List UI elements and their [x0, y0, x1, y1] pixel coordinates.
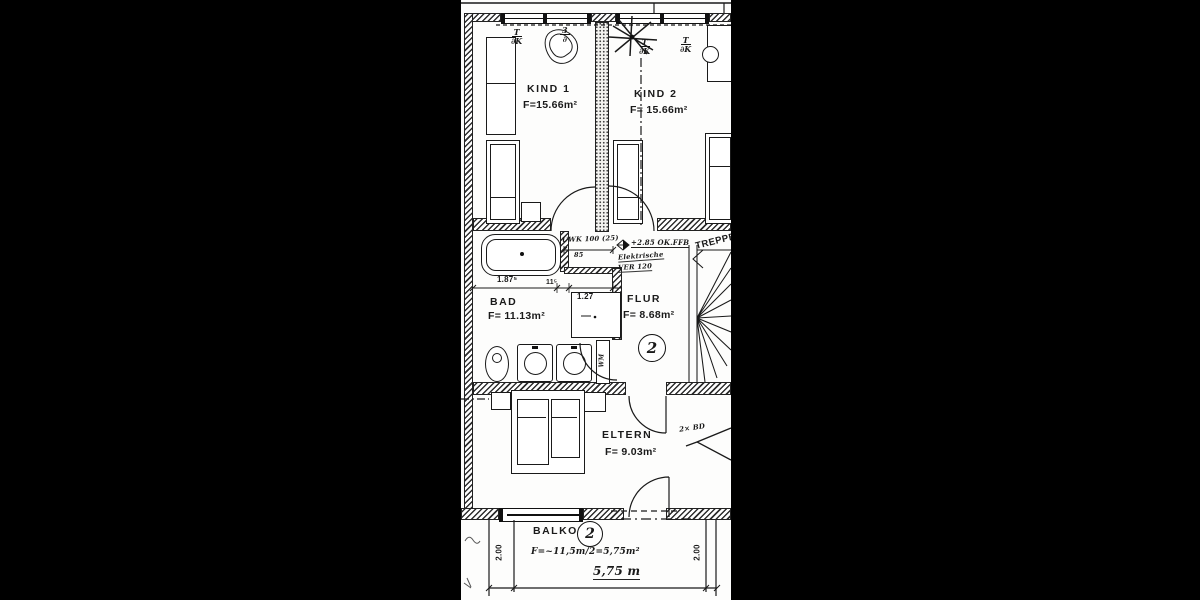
- sink-2-tap: [571, 346, 577, 349]
- dim-balcony-left: 2.00: [495, 544, 504, 560]
- nightstand-eltern-left: [491, 392, 511, 410]
- dim-wall: 11⁵: [546, 279, 557, 286]
- dim-85: 85: [574, 251, 583, 259]
- wall-balcony-left: [461, 508, 499, 520]
- toilet: [485, 346, 509, 382]
- door-arc-balcony: [629, 477, 669, 517]
- room-area-eltern: F= 9.03m²: [605, 446, 656, 458]
- sketch-arrow: [686, 428, 731, 460]
- nightstand-eltern-right: [584, 392, 606, 412]
- balkon-area-formula: F=~11,5m/2=5,75m²: [531, 547, 640, 557]
- floor-plan: WM: [461, 0, 731, 600]
- dim-balcony-width: 5,75 m: [593, 564, 640, 580]
- unit-number-flur: 2: [638, 334, 666, 362]
- room-label-flur: FLUR: [627, 293, 661, 305]
- wall-top-right: [709, 13, 731, 22]
- sink-1-tap: [532, 346, 538, 349]
- room-area-flur: F= 8.68m²: [623, 309, 674, 321]
- bed-kind1: [486, 140, 520, 224]
- margin-scribbles: [464, 537, 480, 588]
- electrical-symbol-tbk-4: T ∂K: [680, 36, 691, 53]
- sink-1: [517, 344, 553, 382]
- electrical-symbol-tbk-1: T ∂K: [511, 28, 522, 45]
- washing-machine-label: WM: [598, 354, 605, 368]
- wall-left-exterior: [464, 13, 473, 520]
- room-label-treppe: TREPPE: [694, 231, 731, 252]
- nightstand-kind1: [521, 202, 541, 222]
- wall-balcony-right: [666, 508, 731, 520]
- door-arc-kind1: [551, 187, 595, 231]
- wall-top-left: [469, 13, 501, 22]
- wall-top-mid: [591, 13, 616, 22]
- unit-number-balkon: 2: [577, 521, 603, 547]
- dim-bath-width: 1.87⁵: [497, 275, 517, 284]
- wall-stairs-bottom: [666, 382, 731, 395]
- door-arc-eltern: [629, 396, 666, 433]
- room-area-kind1: F=15.66m²: [523, 99, 577, 111]
- wardrobe-kind1: [486, 37, 516, 135]
- bed-kind2: [613, 140, 643, 224]
- room-label-kind2: KIND 2: [634, 88, 677, 100]
- note-uwk: UWK 100 (25): [562, 234, 619, 244]
- bed-kind2-right: [705, 133, 731, 224]
- stairs-treads: [689, 245, 731, 383]
- window-eltern: [499, 508, 583, 522]
- electrical-symbol-tbk-3: T ∂K: [639, 38, 650, 55]
- chair-kind2: [702, 46, 719, 63]
- sink-2: [556, 344, 592, 382]
- washing-machine: WM: [596, 340, 610, 384]
- bathtub: [481, 234, 561, 276]
- room-area-kind2: F= 15.66m²: [630, 104, 688, 116]
- wall-partition-kind: [595, 22, 609, 232]
- bathtub-drain: [520, 252, 524, 256]
- room-label-kind1: KIND 1: [527, 83, 570, 95]
- wall-balcony-mid: [583, 508, 624, 520]
- note-elektro-2: VER 120: [618, 262, 652, 273]
- room-area-bad: F= 11.13m²: [488, 310, 545, 322]
- dim-niche: 1.27: [577, 292, 593, 301]
- window-kind2: [616, 13, 709, 24]
- room-label-bad: BAD: [490, 296, 517, 308]
- room-label-eltern: ELTERN: [602, 429, 652, 441]
- electrical-symbol-tbk-2: 3 ∂: [560, 26, 570, 43]
- note-level: +2.85 OK.FFB: [631, 238, 689, 248]
- dim-balcony-right: 2.00: [693, 544, 702, 560]
- scanned-floorplan-page: WM: [0, 0, 1200, 600]
- note-2xbd: 2× BD: [679, 421, 706, 434]
- double-bed-eltern: [511, 390, 585, 474]
- note-elektro-1: Elektrische: [618, 250, 664, 262]
- window-kind1: [501, 13, 591, 24]
